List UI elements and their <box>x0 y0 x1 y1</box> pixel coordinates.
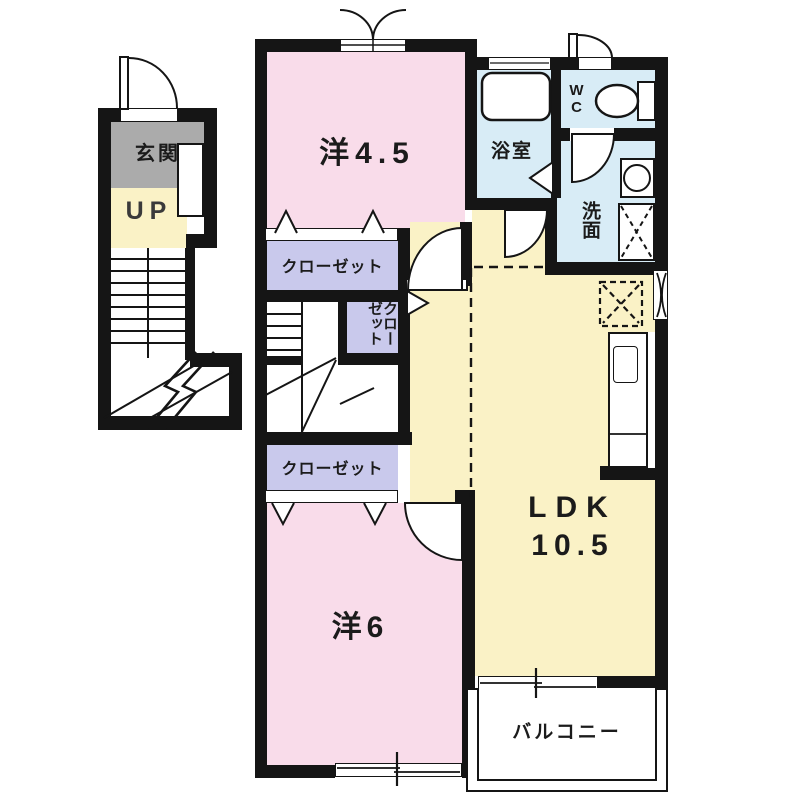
room-hall <box>410 222 462 503</box>
toilet-window-panel <box>568 33 578 59</box>
closet-lower-doors <box>265 490 398 503</box>
wall <box>255 432 412 445</box>
toilet-door-gap <box>570 128 614 141</box>
closet-upper-doors <box>265 228 398 241</box>
western-room-6-label: 洋6 <box>290 602 430 646</box>
window-bathroom <box>488 57 551 70</box>
stairs-up-label: UP <box>112 197 186 226</box>
room-hall-strip <box>472 210 545 263</box>
closet-upper-label: クローゼット <box>267 253 398 277</box>
closet-lower-label: クローゼット <box>267 455 398 479</box>
balcony-label: バルコニー <box>486 717 648 744</box>
room-bathroom <box>477 70 551 198</box>
bathroom-label: 浴室 <box>482 136 542 163</box>
window-western-45 <box>340 39 406 52</box>
wall <box>551 57 561 198</box>
washer-pan <box>618 203 655 261</box>
window-western-6 <box>335 763 462 777</box>
wall <box>614 128 668 141</box>
wall <box>655 318 668 690</box>
washing-machine <box>620 158 655 198</box>
wall <box>255 39 340 52</box>
window-kitchen <box>653 270 668 320</box>
entrance-door-threshold <box>120 108 178 122</box>
entrance-door-panel <box>119 56 129 110</box>
kitchen-counter-gap <box>648 332 655 468</box>
ldk-label: LDK <box>490 491 655 525</box>
washroom-label: 洗面 <box>571 188 599 252</box>
wall <box>186 234 217 248</box>
toilet-window-swing-icon <box>578 35 612 58</box>
ldk-size-label: 10.5 <box>490 529 655 563</box>
western-45-door-panel <box>405 278 468 291</box>
stairs-first-floor <box>104 248 232 428</box>
closet-side-label: クローゼット <box>351 295 397 351</box>
wall <box>465 57 488 70</box>
wall <box>465 198 557 210</box>
wall <box>255 765 335 778</box>
wall <box>98 108 111 430</box>
toilet-label: WC <box>562 72 584 126</box>
wall <box>204 108 217 248</box>
wall <box>545 262 668 275</box>
wall <box>655 57 668 272</box>
wall <box>185 248 195 360</box>
kitchen-sink <box>613 346 638 383</box>
entrance-door-swing-icon <box>129 58 177 108</box>
wall <box>398 228 410 445</box>
wall <box>255 39 267 778</box>
western-room-45-label: 洋4.5 <box>272 128 462 172</box>
entrance-label: 玄関 <box>118 137 198 166</box>
wall <box>98 416 242 430</box>
window-toilet-gap <box>578 57 612 70</box>
wall <box>600 466 655 480</box>
wall <box>460 222 472 286</box>
floor-plan: 玄関 UP 洋4.5 クローゼット クローゼット クローゼット 浴室 WC 洗面… <box>0 0 800 800</box>
